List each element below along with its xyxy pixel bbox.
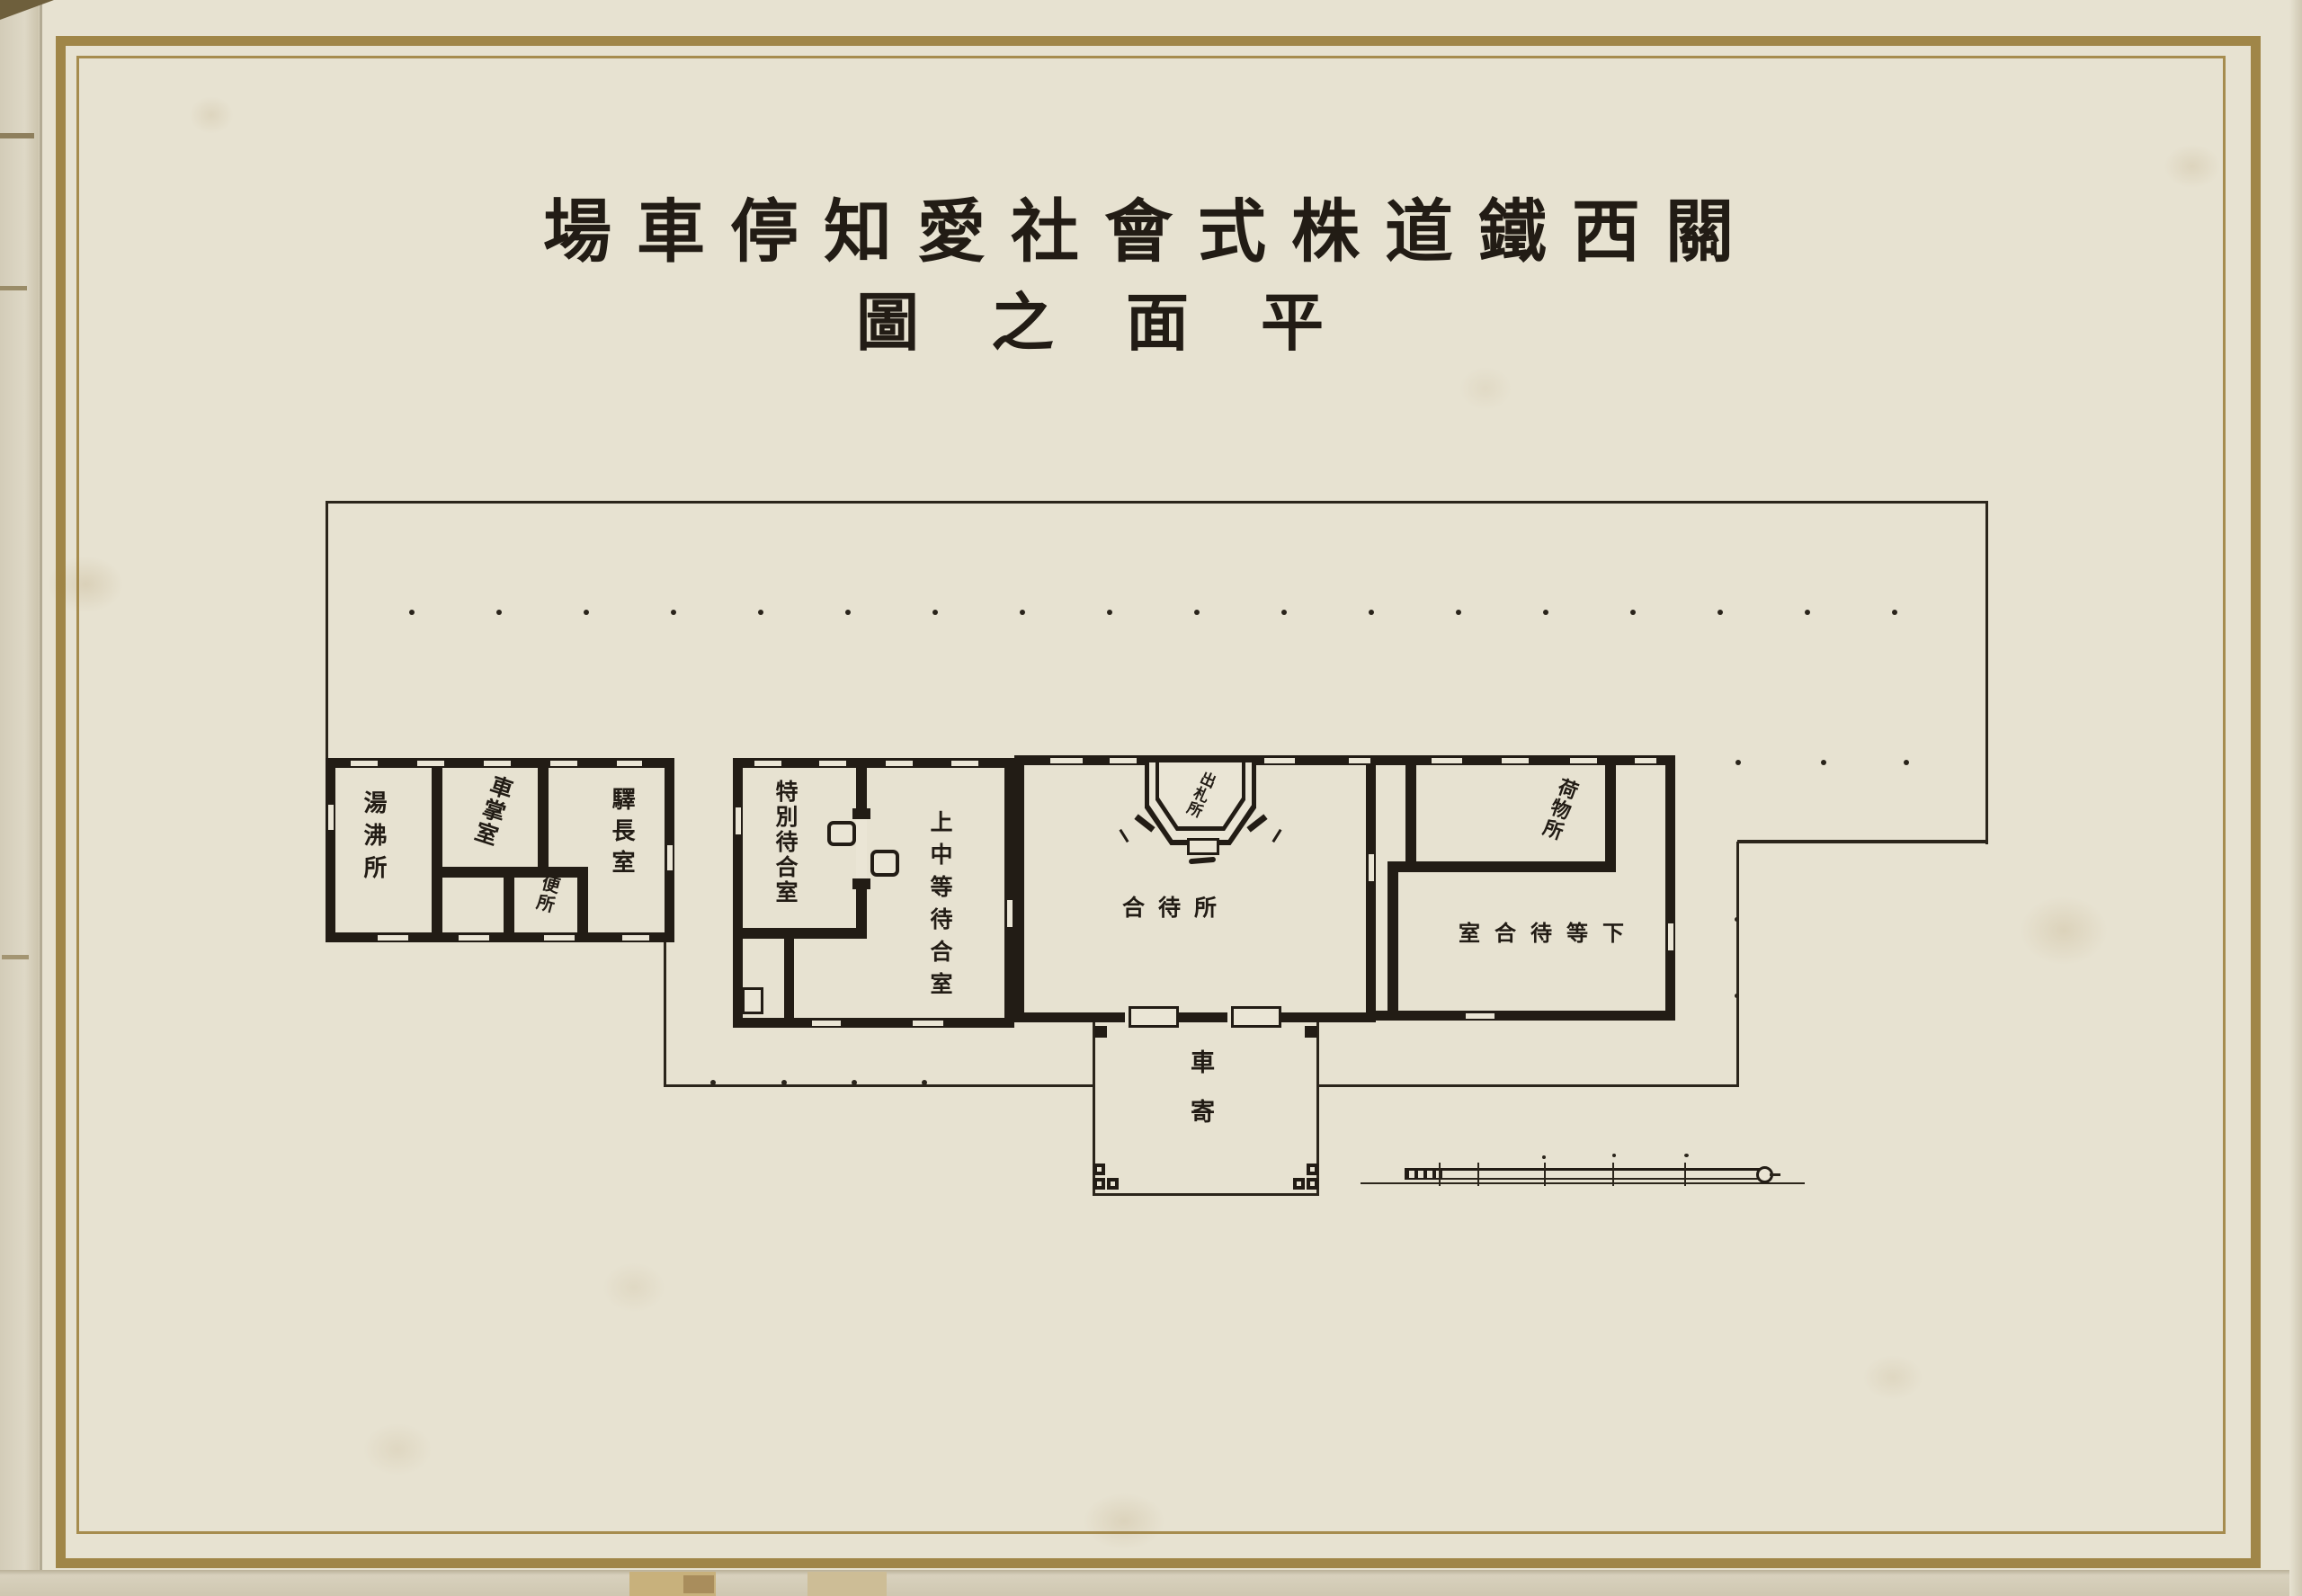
page-edge-bottom	[0, 1570, 2302, 1596]
page-subtitle: 圖之面平	[856, 272, 1396, 363]
fence-right-vertical	[1736, 842, 1739, 1086]
canopy-column-dot	[1630, 610, 1636, 615]
tick-mark	[1542, 1155, 1546, 1159]
window	[1466, 1013, 1495, 1019]
window	[378, 935, 408, 941]
fence-left-vertical	[664, 941, 666, 1087]
room-label-porch: 車寄	[1188, 1049, 1212, 1148]
window	[1050, 758, 1083, 763]
window	[1349, 758, 1370, 763]
fence-bottom-left	[665, 1084, 1095, 1087]
window	[1264, 758, 1295, 763]
wall	[1605, 755, 1616, 872]
canopy-column-dot	[1904, 760, 1909, 765]
wall	[1665, 755, 1675, 1021]
window	[328, 805, 334, 830]
fence-end-nub	[1770, 1173, 1780, 1176]
window	[819, 761, 846, 766]
fixture-box	[742, 987, 763, 1014]
wall	[784, 939, 794, 1028]
canopy-column-dot	[1194, 610, 1200, 615]
entrance-porch: 車寄	[1093, 1022, 1319, 1196]
window	[913, 1021, 943, 1026]
window	[1502, 758, 1529, 763]
fence-post-dot	[1735, 994, 1739, 998]
fence-post	[1612, 1163, 1614, 1186]
window	[736, 807, 741, 834]
fence-post	[1684, 1163, 1686, 1186]
wall	[1366, 755, 1376, 1022]
window	[1635, 758, 1656, 763]
binding-mark	[0, 286, 27, 290]
binding-mark	[0, 133, 34, 138]
wall	[1004, 758, 1014, 1028]
fence-post	[1439, 1163, 1441, 1186]
canopy-column-dot	[1369, 610, 1374, 615]
porch-column	[1107, 1178, 1119, 1190]
ground-line	[1361, 1182, 1805, 1184]
canopy-column-dot	[1456, 610, 1461, 615]
window	[617, 761, 642, 766]
window	[351, 761, 378, 766]
room-label-waiting-area: 合待所	[1122, 890, 1230, 923]
door-opening	[856, 817, 867, 880]
window	[886, 761, 913, 766]
fence-post-dot	[781, 1080, 787, 1085]
canopy-column-dot	[584, 610, 589, 615]
threshold-mark	[1189, 857, 1216, 865]
door-swing-arc	[1271, 829, 1281, 843]
canopy-column-dot	[1020, 610, 1025, 615]
window	[484, 761, 511, 766]
window	[754, 761, 781, 766]
canopy-column-dot	[1821, 760, 1826, 765]
yard-wall-southeast	[1737, 840, 1988, 843]
wall	[1376, 1011, 1675, 1021]
canopy-column-dot	[409, 610, 415, 615]
tape-mark	[807, 1572, 887, 1596]
door-swing-arc	[1119, 829, 1129, 843]
wall	[1014, 1012, 1376, 1022]
canopy-column-dot	[845, 610, 851, 615]
wall	[1387, 861, 1398, 1011]
canopy-outline-top	[326, 501, 1987, 504]
wall	[733, 928, 867, 939]
room-label-conductor: 車掌室	[471, 772, 515, 849]
room-label-special-waiting: 特別待合室	[774, 780, 797, 905]
window	[1432, 758, 1462, 763]
wall	[577, 867, 588, 942]
fence-post-dot	[710, 1080, 716, 1085]
wall	[326, 758, 335, 942]
door-jamb	[852, 808, 870, 819]
wall	[733, 1018, 1014, 1028]
window	[417, 761, 444, 766]
canopy-column-dot	[1892, 610, 1897, 615]
porch-column	[1094, 1026, 1107, 1038]
wall	[432, 758, 442, 932]
porch-column	[1093, 1178, 1105, 1190]
window	[1369, 854, 1374, 881]
room-label-toilet: 便所	[533, 872, 561, 915]
canopy-column-dot	[496, 610, 502, 615]
wall	[538, 758, 549, 878]
tape-mark	[683, 1575, 714, 1593]
wall	[1405, 755, 1416, 872]
left-building: 湯沸所 車掌室 驛長室 便所	[326, 758, 674, 942]
fence-post	[1544, 1163, 1546, 1186]
fence-post-dot	[852, 1080, 857, 1085]
platform-fence-drawing	[1361, 1154, 1819, 1199]
fence-post-dot	[1735, 917, 1739, 922]
tick-mark	[1684, 1154, 1689, 1157]
window	[1007, 900, 1013, 927]
canopy-column-dot	[1543, 610, 1548, 615]
binding-mark	[2, 955, 29, 959]
window	[550, 761, 577, 766]
window	[544, 935, 575, 941]
wall	[1387, 861, 1616, 872]
middle-building: 特別待合室 上中等待合室	[733, 758, 1014, 1028]
fence-bottom-right	[1319, 1084, 1739, 1087]
room-label-water-boiling: 湯沸所	[361, 790, 385, 887]
fence-rail-top	[1405, 1168, 1761, 1171]
room-label-stationmaster: 驛長室	[610, 787, 633, 881]
canopy-column-dot	[932, 610, 938, 615]
fence-slot	[1409, 1171, 1414, 1178]
window	[1570, 758, 1597, 763]
canopy-column-dot	[671, 610, 676, 615]
fence-rail-bottom	[1405, 1178, 1761, 1180]
window	[1110, 758, 1137, 763]
canopy-column-dot	[1718, 610, 1723, 615]
canopy-column-dot	[1281, 610, 1287, 615]
canopy-column-dot	[758, 610, 763, 615]
room-label-upper-middle-waiting: 上中等待合室	[929, 810, 951, 1004]
door-leaf	[870, 850, 899, 877]
window	[459, 935, 489, 941]
porch-column	[1305, 1026, 1317, 1038]
wall	[504, 867, 514, 942]
scanned-album-page: 場車停知愛社會式株道鐵西關 圖之面平	[0, 0, 2302, 1596]
porch-column	[1307, 1178, 1318, 1190]
window	[812, 1021, 841, 1026]
porch-column	[1093, 1164, 1105, 1175]
floor-plan: 湯沸所 車掌室 驛長室 便所	[324, 499, 1989, 1209]
canopy-column-dot	[1107, 610, 1112, 615]
central-hall: 出札所 合待所	[1014, 755, 1376, 1022]
fence-slot	[1427, 1171, 1432, 1178]
right-building: 荷物所 室合待等下	[1376, 755, 1675, 1021]
room-label-lower-class-waiting: 室合待等下	[1459, 915, 1638, 947]
porch-wall	[1093, 1193, 1319, 1196]
canopy-column-dot	[1805, 610, 1810, 615]
fence-post	[1477, 1163, 1479, 1186]
window	[622, 935, 649, 941]
canopy-column-dot	[1735, 760, 1741, 765]
window	[667, 845, 673, 870]
door-leaf	[827, 821, 856, 846]
fence-slot	[1418, 1171, 1423, 1178]
page-title: 場車停知愛社會式株道鐵西關	[0, 176, 2302, 275]
porch-column	[1307, 1164, 1318, 1175]
ticket-counter-window	[1187, 838, 1219, 855]
window	[1668, 923, 1673, 950]
window	[951, 761, 978, 766]
canopy-outline-right	[1985, 501, 1988, 844]
porch-column	[1293, 1178, 1305, 1190]
door-jamb	[852, 878, 870, 889]
room-label-baggage: 荷物所	[1539, 775, 1579, 843]
wall	[1014, 755, 1024, 1022]
fence-post-dot	[922, 1080, 927, 1085]
canopy-outline-left	[326, 501, 328, 762]
tick-mark	[1612, 1154, 1616, 1157]
